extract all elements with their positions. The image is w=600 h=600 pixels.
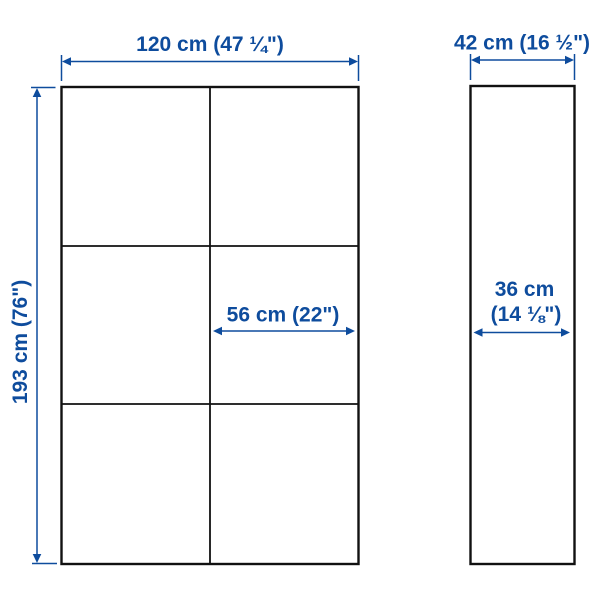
svg-text:193 cm (76"): 193 cm (76") [9, 280, 32, 404]
svg-text:(14 ⅛"): (14 ⅛") [491, 303, 562, 326]
svg-text:120 cm (47 ¼"): 120 cm (47 ¼") [136, 33, 284, 56]
svg-text:42 cm (16 ½"): 42 cm (16 ½") [454, 32, 590, 55]
svg-text:56 cm (22"): 56 cm (22") [227, 304, 340, 327]
svg-text:36 cm: 36 cm [495, 278, 555, 301]
